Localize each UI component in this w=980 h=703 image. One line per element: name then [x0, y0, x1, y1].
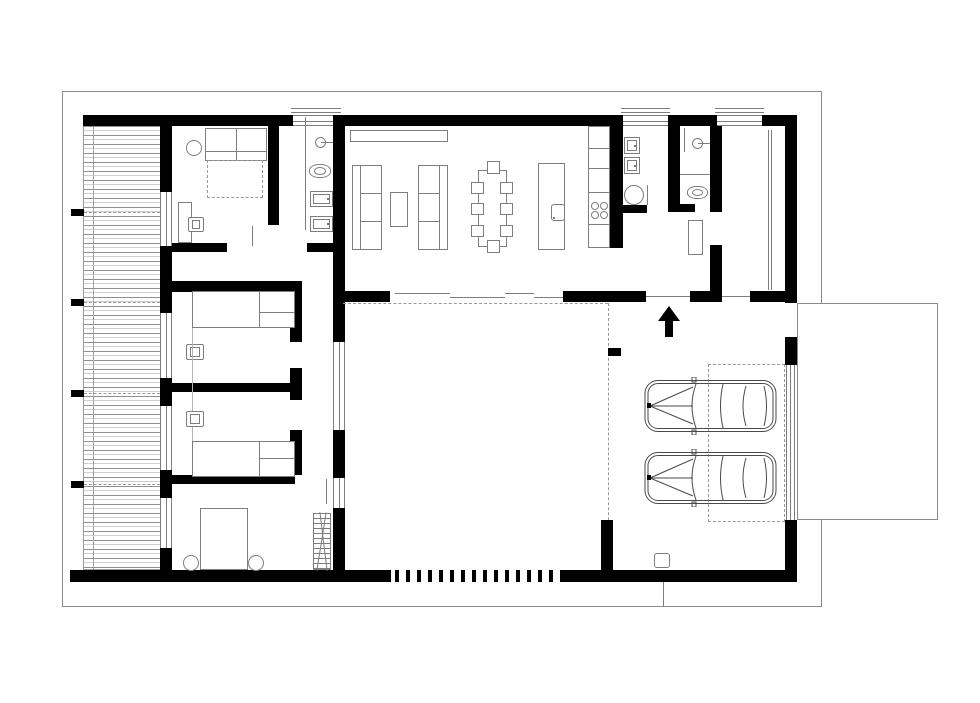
tap-line [698, 143, 710, 144]
entrance-arrow-icon [658, 306, 680, 321]
coffee-table [390, 192, 408, 227]
counter-line [589, 168, 609, 169]
pillow-line [260, 312, 294, 313]
sofa-back-line [360, 166, 361, 249]
round-stool [186, 140, 202, 156]
sliding-door-line [395, 293, 450, 294]
single-bed [192, 291, 295, 328]
burner-icon [600, 211, 608, 219]
sofa [352, 165, 382, 250]
desk-chair [188, 217, 204, 232]
sofa-cushion-line [361, 193, 381, 194]
floor-drain [654, 553, 670, 568]
wall-segment [172, 243, 227, 252]
washer-icon [310, 191, 333, 207]
wall-segment [668, 126, 680, 205]
burner-icon [600, 202, 608, 210]
pillow-divider-line [236, 129, 237, 160]
dining-chair [471, 203, 484, 215]
single-bed [192, 441, 295, 477]
sofa [418, 165, 448, 250]
window-sill-line [291, 108, 341, 109]
wall-segment [785, 115, 797, 303]
floor-plan [0, 0, 980, 703]
glazed-door [333, 478, 345, 508]
wall-segment [307, 243, 333, 252]
dining-chair [471, 225, 484, 237]
deck-joint-tick [71, 299, 84, 306]
wall-segment [160, 470, 172, 498]
pillow-line [260, 458, 294, 459]
pillow-line [259, 442, 260, 476]
sliding-door-line [505, 293, 534, 294]
toilet-icon [309, 164, 331, 178]
sofa-back-line [439, 166, 440, 249]
wall-segment [83, 115, 293, 126]
wardrobe-rack [313, 513, 331, 570]
wall-segment [601, 520, 613, 570]
burner-icon [591, 211, 599, 219]
garage-screen-line [786, 365, 787, 520]
door-threshold-line [646, 296, 690, 297]
apron-edge-line [663, 582, 664, 607]
window-sill-line [291, 112, 341, 113]
dining-chair [487, 240, 500, 253]
counter-line [589, 224, 609, 225]
dining-chair [500, 182, 513, 194]
round-appliance-icon [624, 185, 644, 205]
sliding-door-line [450, 297, 505, 298]
dryer-icon [310, 216, 333, 232]
garage-jamb [785, 337, 797, 365]
deck-joint-line [84, 302, 160, 303]
window [160, 406, 172, 470]
wall-segment [668, 204, 695, 212]
window [717, 115, 762, 126]
window-sill-line [621, 108, 670, 109]
wall-segment [690, 291, 722, 302]
bed-line [206, 151, 266, 152]
louvre-fence [395, 570, 563, 582]
dining-chair [500, 225, 513, 237]
vanity-line [680, 174, 710, 175]
round-stool [248, 555, 264, 571]
desk-chair [186, 411, 204, 427]
wall-segment [160, 378, 172, 406]
wall-segment [668, 115, 717, 126]
wall-segment [623, 205, 647, 213]
dining-chair [487, 161, 500, 174]
wall-segment [333, 508, 345, 570]
dining-chair [471, 182, 484, 194]
sink-drain-dot [553, 217, 555, 219]
round-stool [183, 555, 199, 571]
driveway [797, 303, 938, 520]
sofa-cushion-line [419, 193, 439, 194]
shower-screen-line [684, 128, 685, 152]
counter-line [589, 148, 609, 149]
window-sill-line [715, 112, 764, 113]
tap-line [321, 142, 333, 143]
door-leaf-line [252, 226, 253, 246]
window [160, 192, 172, 246]
toilet-icon [687, 186, 708, 199]
sofa-cushion-line [419, 221, 439, 222]
wall-segment [750, 291, 797, 302]
dryer-icon [624, 157, 640, 174]
garage-screen-line [790, 365, 791, 520]
pillow-line [259, 292, 260, 327]
wall-segment [268, 115, 279, 225]
post-tick [608, 348, 621, 356]
deck-joint-line [84, 212, 160, 213]
table [200, 508, 248, 570]
wall-segment [710, 126, 722, 212]
deck-joint-tick [71, 481, 84, 488]
storage-cabinet [688, 220, 703, 255]
deck-centerline [93, 126, 94, 570]
door-leaf-line [326, 479, 327, 504]
wall-segment [333, 430, 345, 478]
wall-segment [339, 115, 623, 126]
vanity-edge-line [305, 117, 306, 230]
wall-segment [160, 115, 172, 192]
glazed-door [333, 342, 345, 430]
shelf-edge-line [768, 130, 769, 290]
washer-icon [624, 137, 640, 154]
deck-joint-tick [71, 209, 84, 216]
tv-console [350, 130, 448, 142]
garage-screen-line [794, 365, 795, 520]
counter-line [589, 192, 609, 193]
entrance-arrow-icon [665, 320, 673, 337]
deck-joint-tick [71, 390, 84, 397]
wall-segment [70, 570, 391, 582]
wall-segment [333, 115, 345, 291]
wall-segment [563, 570, 797, 582]
wall-segment [333, 291, 345, 342]
deck-joint-line [84, 393, 160, 394]
bed-throw-dashed [207, 160, 263, 198]
shelf-edge-line [771, 130, 772, 290]
kitchen-counter [588, 126, 610, 248]
sofa-cushion-line [361, 221, 381, 222]
car-icon [643, 449, 778, 507]
sliding-door-line [534, 297, 563, 298]
counter-return-line [647, 185, 648, 205]
wall-segment [563, 291, 646, 302]
window-sill-line [715, 108, 764, 109]
deck-joint-line [84, 484, 160, 485]
wall-segment [160, 246, 172, 313]
window [160, 498, 172, 548]
burner-icon [591, 202, 599, 210]
roof-overhang-line [343, 303, 608, 304]
desk-chair [186, 344, 204, 360]
deck-boards [83, 126, 161, 570]
door-threshold-line [722, 296, 750, 297]
wall-segment [610, 126, 623, 248]
window [160, 313, 172, 378]
garage-jamb [785, 520, 797, 582]
window [623, 115, 668, 126]
car-icon [643, 377, 778, 435]
window-sill-line [621, 112, 670, 113]
dining-chair [500, 203, 513, 215]
